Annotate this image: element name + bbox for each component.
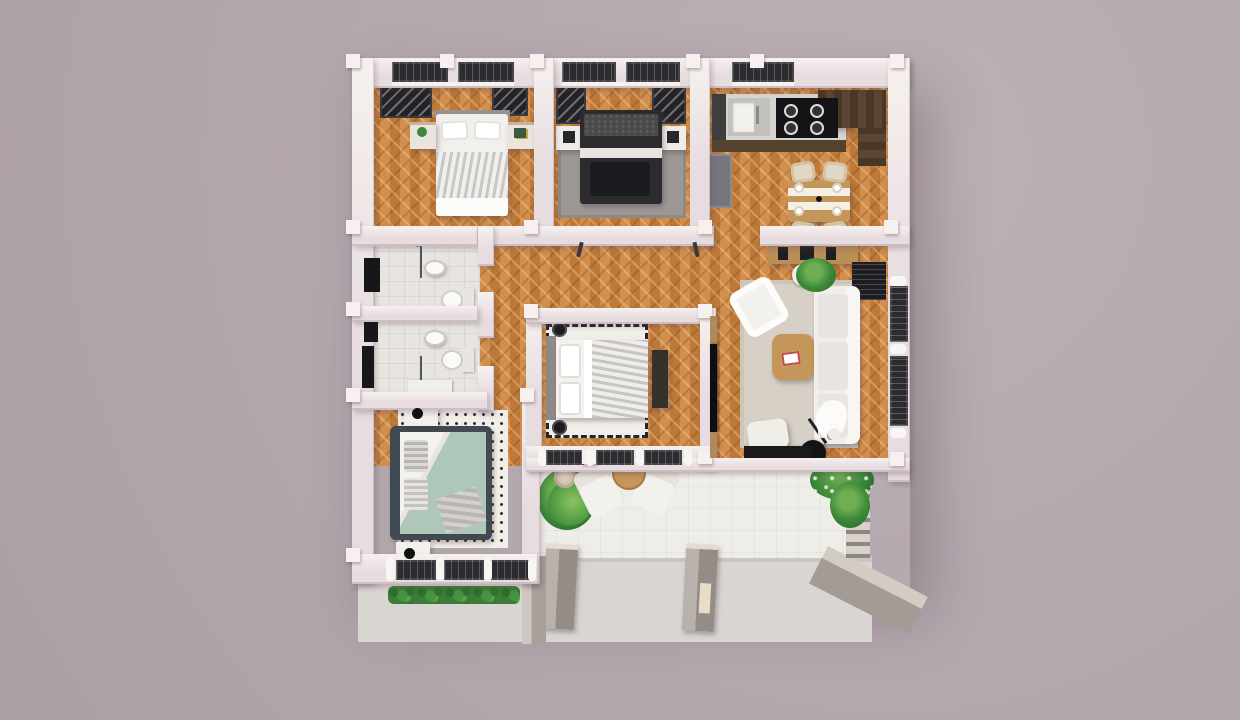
- duvet-tl-fold: [436, 198, 508, 216]
- curtain-center-2: [586, 449, 594, 466]
- pillow-center-bottom: [559, 382, 581, 415]
- window-center-2: [596, 450, 634, 465]
- wall-bath-top: [352, 226, 478, 246]
- foot-bench: [652, 350, 668, 408]
- wall-bath-right-b: [478, 292, 494, 338]
- towel-radiator-2: [364, 322, 378, 342]
- window-living-2: [890, 356, 908, 426]
- pillows-tm: [584, 114, 658, 136]
- toilet-tank-lower: [462, 348, 474, 372]
- pillow-tl-left: [441, 120, 469, 140]
- window-center-1: [546, 450, 584, 465]
- pillow-bl-bottom: [404, 478, 428, 510]
- curtain-bl-4: [528, 558, 536, 581]
- window-sill: [732, 82, 794, 86]
- pillar-inner-face: [699, 583, 712, 614]
- pillow-bl-top: [404, 440, 428, 472]
- decor-on-nightstand: [514, 128, 526, 138]
- toilet-bowl-lower: [441, 350, 463, 370]
- sink-faucet: [756, 106, 759, 124]
- terrace-pillar-left: [542, 543, 578, 630]
- stool-top: [552, 322, 567, 337]
- window-bl-1: [396, 560, 436, 580]
- pepper-mill: [816, 196, 822, 202]
- terrace-pillar-right: [682, 543, 719, 632]
- window-sill: [562, 82, 680, 86]
- window-tl-2: [458, 62, 514, 82]
- wash-basin-upper: [424, 260, 446, 276]
- duvet-tl-striped: [436, 152, 508, 198]
- burner-2: [810, 104, 824, 118]
- tv-screen: [710, 344, 717, 432]
- hedge: [388, 586, 520, 604]
- wash-basin-lower: [424, 330, 446, 346]
- wall-divider-bed2-kitchen: [690, 58, 710, 246]
- wall-cap: [884, 220, 898, 234]
- sofa-back: [846, 286, 860, 444]
- window-center-3: [644, 450, 682, 465]
- curtain-living-3: [890, 428, 906, 438]
- curtain-center-4: [684, 449, 692, 466]
- duvet-center-fold: [584, 340, 592, 418]
- towel-radiator-3: [362, 346, 374, 388]
- counter-front-dark: [712, 140, 846, 152]
- window-living-1: [890, 286, 908, 342]
- frame-tm-right: [667, 131, 679, 143]
- wall-cap: [440, 54, 454, 68]
- tv-wood-panel-bottom: [710, 432, 717, 458]
- wall-cap: [346, 388, 360, 402]
- wall-cap: [890, 54, 904, 68]
- wall-cap: [346, 220, 360, 234]
- window-bl-3: [490, 560, 530, 580]
- curtain-center-3: [636, 449, 644, 466]
- headboard-center: [546, 336, 556, 420]
- curtain-bl-1: [386, 558, 395, 581]
- plant-on-nightstand: [417, 127, 427, 137]
- lamp-bl-bottom: [404, 548, 415, 559]
- curtain-living-1: [890, 276, 906, 286]
- sink-basin: [732, 102, 754, 132]
- wall-cap: [530, 54, 544, 68]
- book-on-table: [781, 351, 801, 366]
- living-plant: [796, 258, 836, 292]
- wall-cap: [346, 548, 360, 562]
- plate-3: [794, 206, 804, 216]
- pet-on-sofa: [828, 428, 840, 440]
- wall-cap: [346, 302, 360, 316]
- floor-plan-render: [0, 0, 1240, 720]
- wall-hall-top: [478, 226, 714, 246]
- plate-4: [832, 206, 842, 216]
- wall-cap: [750, 54, 764, 68]
- window-tm-1: [562, 62, 616, 82]
- wall-divider-bed1-bed2: [534, 58, 554, 246]
- lamp-bl-top: [412, 408, 423, 419]
- plate-2: [832, 183, 842, 193]
- curtain-center-1: [538, 449, 546, 466]
- wall-bath-middle: [352, 306, 478, 322]
- window-bl-2: [444, 560, 484, 580]
- wall-center-top: [526, 308, 716, 324]
- curtain-bl-3: [484, 558, 492, 581]
- sofa-cushion-1: [818, 294, 848, 338]
- curtain-bl-2: [436, 558, 444, 581]
- wall-cap: [698, 220, 712, 234]
- wall-cap: [524, 304, 538, 318]
- trellis-vine-lower: [830, 482, 870, 528]
- stool-bottom: [552, 420, 567, 435]
- window-tm-2: [626, 62, 680, 82]
- tv-wood-panel-top: [710, 316, 717, 344]
- throw-tm: [590, 162, 650, 196]
- duvet-center-striped: [592, 340, 648, 418]
- chair-kitchen-2: [822, 160, 849, 183]
- wardrobe-tl-left: [380, 86, 432, 118]
- window-sill: [392, 82, 514, 86]
- wall-bath-right-a: [478, 226, 494, 266]
- sideboard-decor-1: [778, 247, 788, 260]
- corner-counter-dark-wood-2: [858, 128, 886, 166]
- wall-cap: [520, 388, 534, 402]
- burner-4: [810, 121, 824, 135]
- kitchen-counter-corner: [712, 94, 726, 140]
- pillow-tl-right: [474, 120, 502, 140]
- pillow-center-top: [559, 344, 581, 378]
- wall-cap: [524, 220, 538, 234]
- sideboard-decor-3: [826, 247, 836, 260]
- towel-radiator-1: [364, 258, 380, 292]
- curtain-living-2: [890, 344, 906, 354]
- wall-bl-top: [352, 392, 488, 410]
- wall-cap: [346, 54, 360, 68]
- plate-1: [794, 183, 804, 193]
- sofa-cushion-2: [818, 342, 848, 390]
- wall-cap: [890, 452, 904, 466]
- chair-kitchen-1: [790, 160, 817, 183]
- burner-3: [784, 121, 798, 135]
- sheet-fold-tm: [580, 148, 662, 158]
- burner-1: [784, 104, 798, 118]
- wall-cap: [686, 54, 700, 68]
- frame-tm-left: [563, 131, 575, 143]
